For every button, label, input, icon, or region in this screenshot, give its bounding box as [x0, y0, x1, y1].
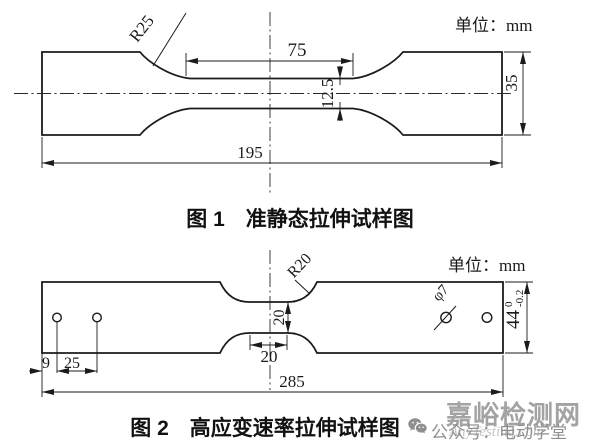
unit-label-fig1: 单位：mm — [455, 16, 532, 35]
dim-gauge-width: 12.5 — [318, 79, 337, 109]
dim-fillet-radius: R25 — [125, 12, 157, 46]
wechat-icon — [406, 414, 430, 438]
phi7-leader-line — [434, 306, 456, 330]
dim-total-length: 285 — [279, 372, 305, 391]
r20-leader-line — [295, 280, 310, 294]
figure1-caption: 图 1 准静态拉伸试样图 — [0, 203, 600, 233]
r25-leader-line — [153, 13, 186, 66]
unit-label-fig2: 单位：mm — [448, 256, 525, 275]
dim-gauge-length: 75 — [288, 40, 307, 61]
dim-gauge-length: 20 — [261, 347, 278, 366]
dim-total-length: 195 — [237, 143, 263, 162]
pin-hole — [482, 313, 492, 323]
dim-hole-spacing: 25 — [64, 355, 80, 372]
dim-grip-width: 35 — [502, 75, 521, 92]
dim-width-tol-lower: -0.2 — [514, 290, 526, 307]
watermark-account: 公众号：电动学堂 — [431, 418, 567, 443]
dim-hole-edge-offset: 9 — [42, 355, 50, 372]
dim-gauge-width: 20 — [271, 310, 288, 326]
dim-fillet-radius: R20 — [284, 250, 315, 281]
pin-hole — [93, 313, 102, 322]
dim-width-nominal: 44 — [503, 310, 524, 330]
pin-hole — [53, 313, 62, 322]
dim-hole-diameter: φ7 — [430, 282, 453, 305]
figure1-drawing: R25 75 12.5 35 195 单位：mm — [0, 0, 600, 200]
figure2-drawing: R20 20 20 9 25 285 φ7 44 0 — [0, 240, 600, 408]
dim-width-with-tolerance: 44 0 -0.2 — [503, 290, 526, 329]
technical-drawing-page: R25 75 12.5 35 195 单位：mm 图 1 准静态拉伸试样图 — [0, 0, 600, 448]
